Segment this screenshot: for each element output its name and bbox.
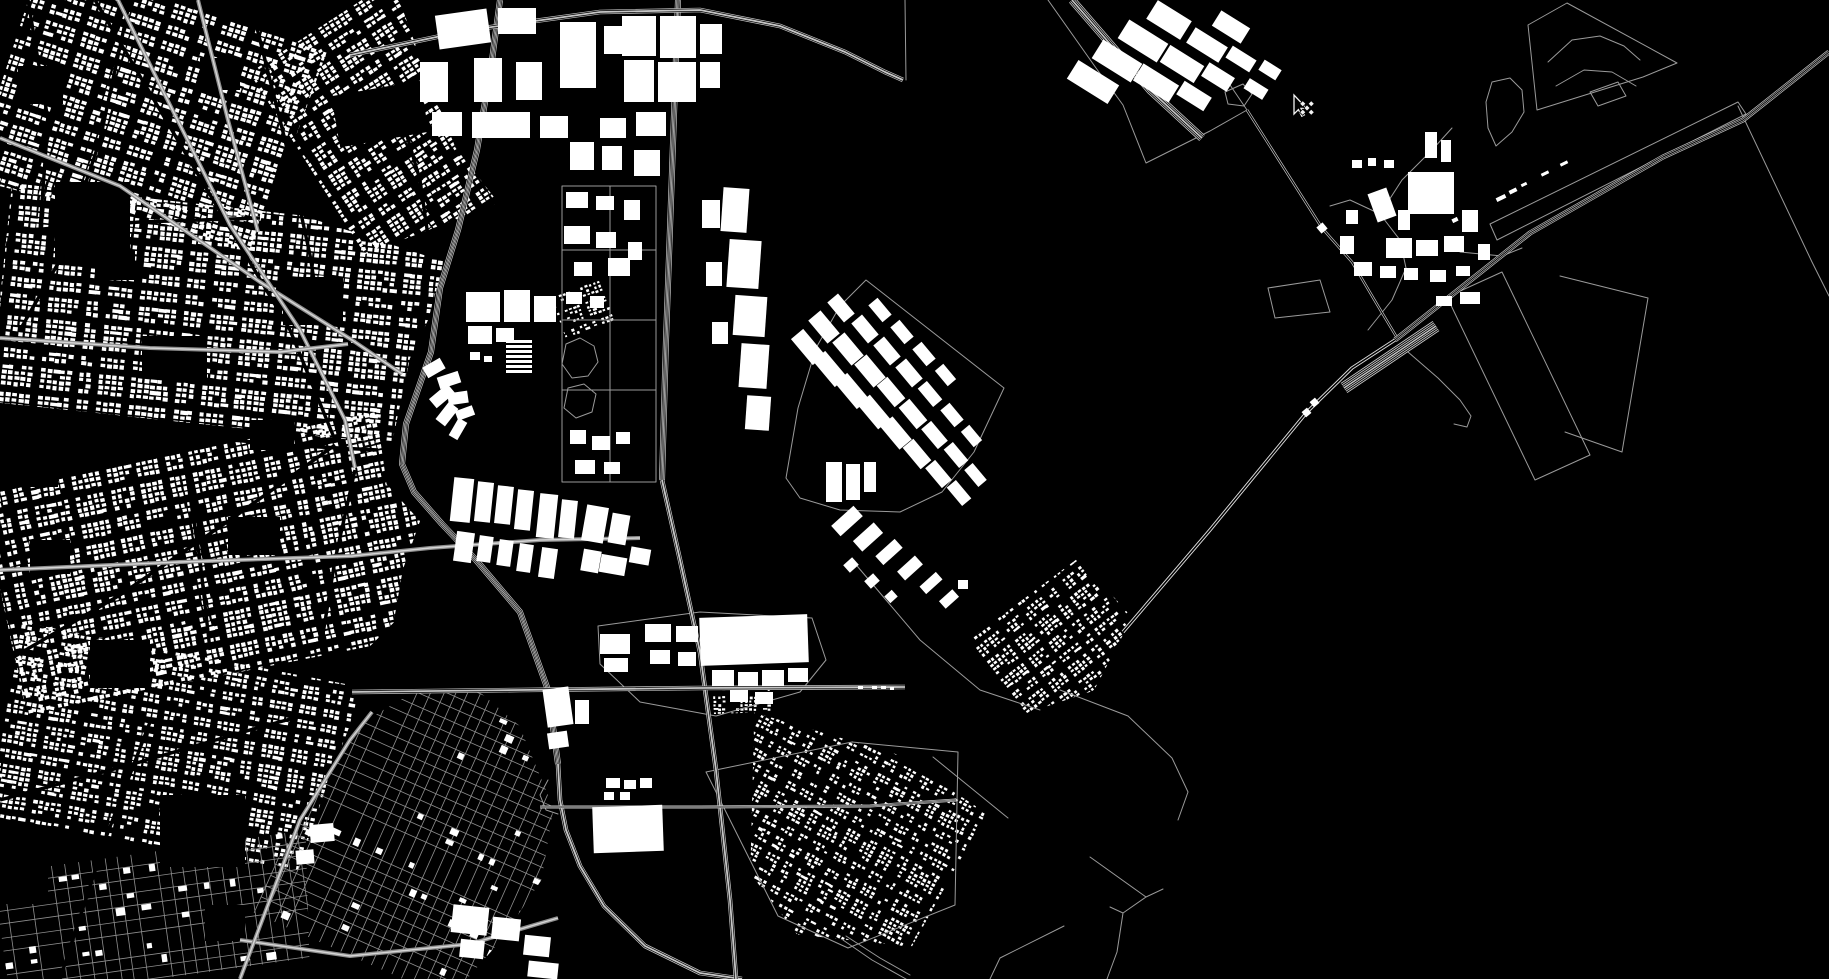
- map-viewport: [0, 0, 1829, 979]
- map-canvas[interactable]: [0, 0, 1829, 979]
